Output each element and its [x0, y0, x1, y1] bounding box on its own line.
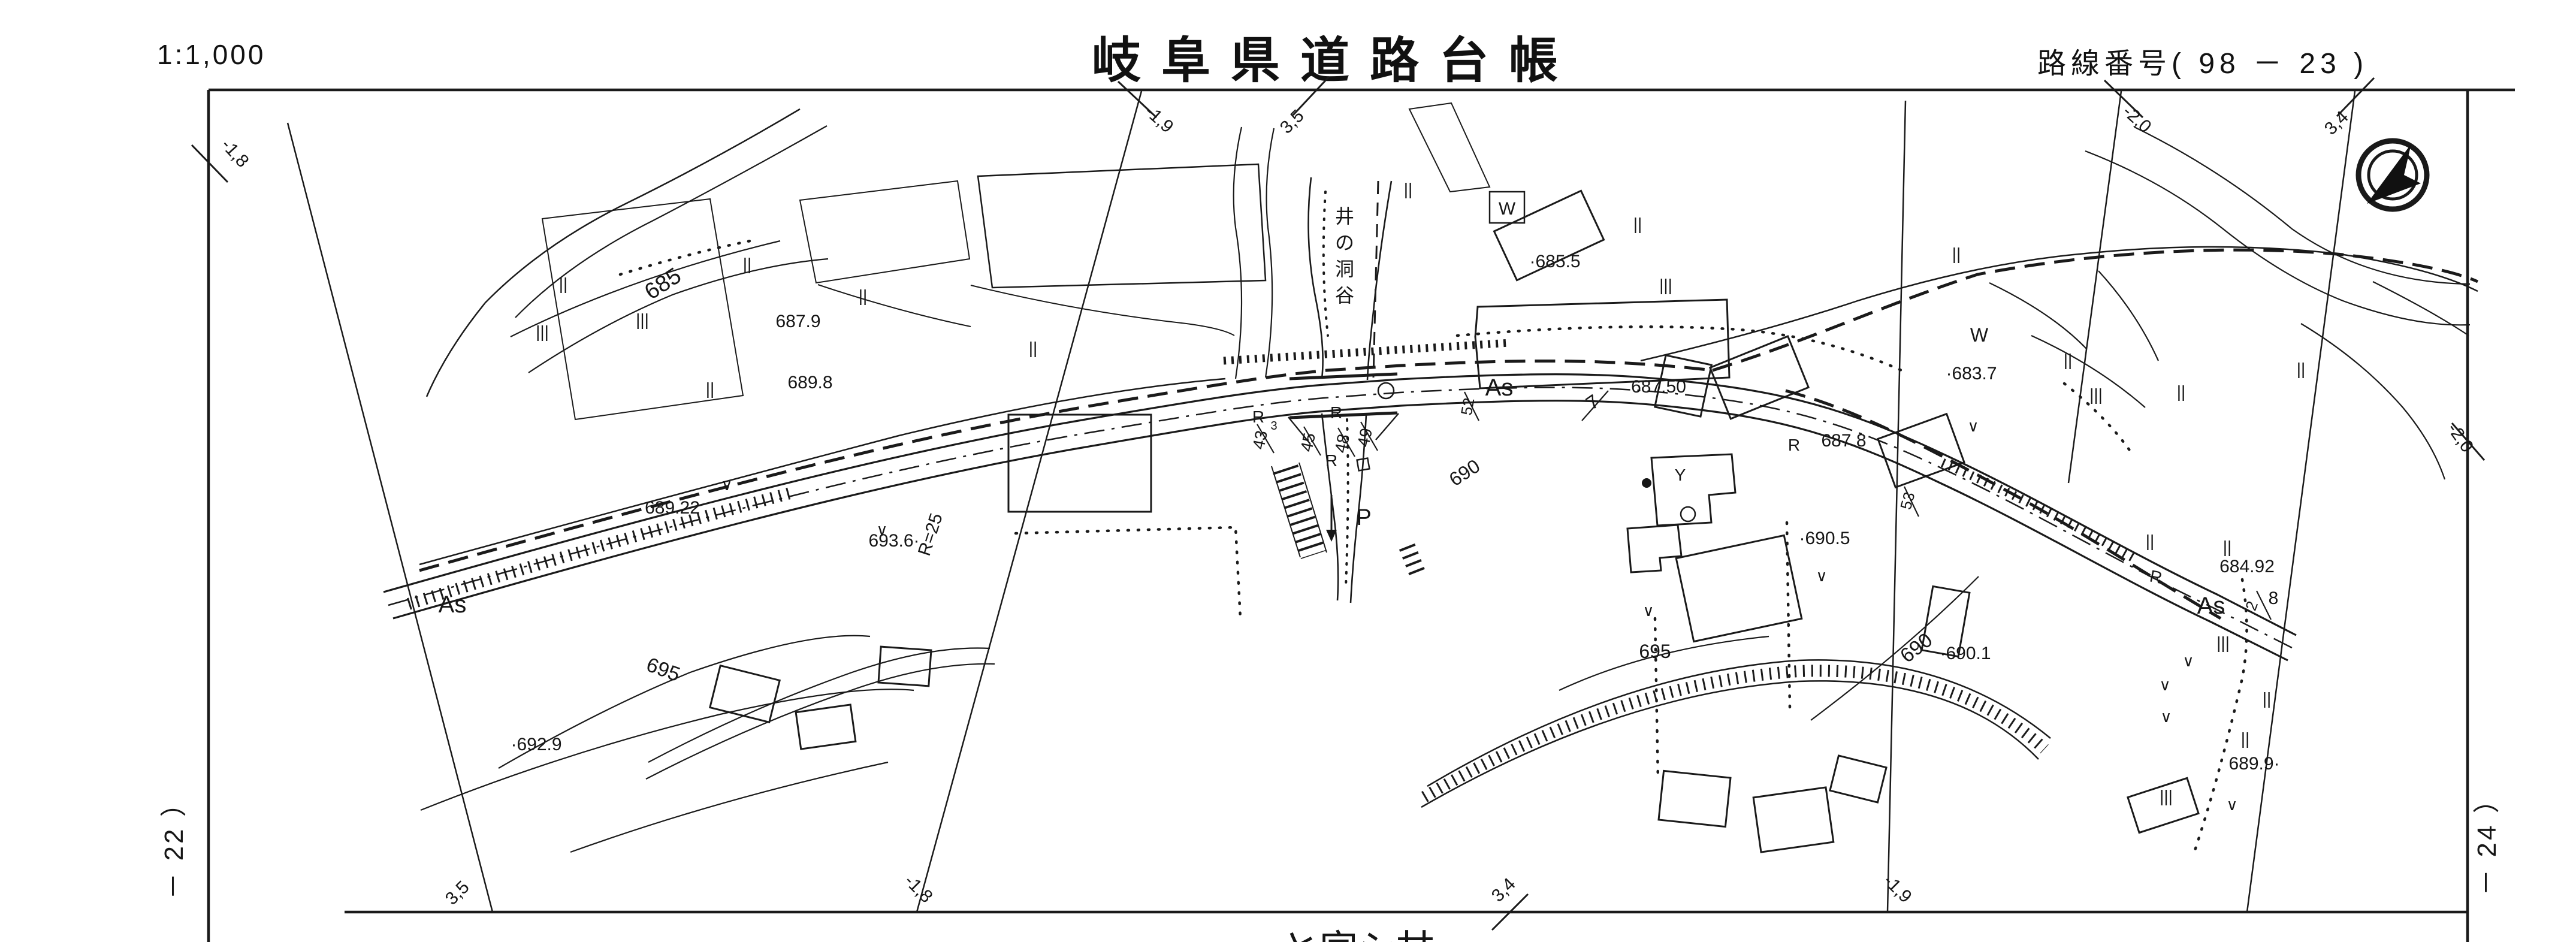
stream-name-char: の — [1335, 232, 1354, 253]
grid-tick: -2,0 — [2119, 101, 2155, 137]
benchmark-dot — [1642, 478, 1651, 488]
map-drawing: － 22 ） － 24 ） と宮シ甘 井の洞谷 -1,8-1,93,5-2,03… — [0, 0, 2576, 942]
grass-symbol: ∨ — [1816, 567, 1827, 585]
spot-elevation: 687.9 — [775, 312, 820, 331]
field-symbol: || — [2146, 532, 2155, 550]
grass-symbol: ∨ — [2226, 796, 2237, 814]
width-dimension: 49 — [1354, 427, 1376, 449]
field-symbol: || — [2223, 538, 2232, 556]
left-sheet-number: － 22 ） — [159, 788, 189, 899]
field-symbol: ||| — [2160, 787, 2173, 805]
contour-label: 695 — [1639, 641, 1671, 662]
field-symbol: || — [743, 255, 752, 273]
width-measure-ticks — [1257, 391, 2271, 620]
spot-elevation: ·690.5 — [1799, 529, 1850, 548]
spot-elevation: 687.8 — [1821, 431, 1866, 451]
spot-elevation: ·690.1 — [1940, 644, 1991, 663]
stairs-small — [1407, 547, 1418, 574]
grass-symbol: ∨ — [2160, 708, 2172, 726]
grid-tick: -1,9 — [1880, 871, 1916, 907]
road-letter: R — [1252, 407, 1264, 426]
right-sheet-number: － 24 ） — [2472, 784, 2502, 895]
field-symbol: ||| — [2089, 385, 2103, 404]
building — [1659, 771, 1731, 826]
walls-and-stairs — [409, 343, 2134, 604]
field-symbol: || — [559, 274, 568, 293]
building — [796, 705, 856, 749]
field-symbol: || — [706, 379, 715, 398]
field-letter: W — [1970, 324, 1989, 346]
field-symbol: || — [1404, 180, 1413, 198]
field-symbol: || — [2297, 360, 2306, 378]
stream-name-char: 井 — [1335, 206, 1354, 227]
spot-elevation: ·692.9 — [511, 735, 561, 754]
road-letter: R — [1325, 451, 1337, 470]
stairs — [1285, 469, 1313, 555]
road-letter: P — [1356, 505, 1371, 530]
grass-symbol: ∨ — [2159, 676, 2170, 694]
building — [878, 647, 931, 686]
grid-tick: 3,4 — [1488, 874, 1520, 906]
field-symbol: || — [859, 286, 868, 305]
grass-symbol: ∨ — [721, 476, 732, 494]
width-dimension: 48 — [1331, 433, 1353, 455]
contour-label: 690 — [1445, 455, 1484, 490]
north-compass-icon — [2358, 141, 2427, 209]
building — [1651, 454, 1735, 526]
grass-symbol: ∨ — [1642, 602, 1654, 620]
field-symbol: || — [2263, 689, 2272, 708]
spot-elevation: 689.8 — [787, 373, 832, 393]
pavement-label: As — [1485, 375, 1514, 401]
grass-symbol: ∨ — [876, 521, 887, 539]
admin-boundary-dash — [419, 361, 1713, 570]
width-dimension: 43 — [1249, 429, 1271, 451]
spot-elevation: ·683.7 — [1946, 364, 1997, 384]
field-symbol: || — [1633, 215, 1642, 233]
bottom-margin-note: と宮シ甘 — [1281, 928, 1435, 942]
building — [1627, 525, 1681, 572]
building — [1753, 787, 1834, 852]
pavement-label: As — [2197, 593, 2225, 619]
manhole-circle — [1681, 507, 1695, 521]
spot-elevation: 689.9· — [2228, 754, 2279, 774]
contour-label: 695 — [644, 653, 683, 686]
main-road — [383, 250, 2478, 660]
road-ledger-sheet: 1:1,000 岐阜県道路台帳 路線番号( 98 － 23 ) — [0, 0, 2576, 942]
width-dimension: 52 — [1457, 397, 1478, 417]
width-dimension: 45 — [1297, 431, 1319, 454]
field-symbol: ||| — [636, 310, 649, 329]
building — [1878, 414, 1964, 488]
building — [1830, 756, 1886, 802]
field-symbol: || — [1952, 244, 1961, 263]
well-symbol-letter: W — [1499, 199, 1516, 219]
field-symbol: || — [2177, 382, 2186, 401]
stream-name: 井の洞谷 — [1335, 206, 1354, 306]
grid-tick: -2,0 — [2443, 419, 2477, 456]
field-symbol: || — [2064, 351, 2073, 369]
width-dimension: 8 — [2269, 588, 2279, 608]
section-boundary-lines — [192, 77, 2484, 930]
manhole-circle — [1378, 383, 1394, 398]
grass-symbol: ∨ — [2182, 652, 2194, 670]
spot-elevation: 687.50 — [1631, 377, 1686, 397]
road-letter: R — [1788, 436, 1800, 454]
grid-tick: -1,8 — [901, 871, 937, 907]
grid-tick: -1,8 — [217, 135, 252, 171]
spot-elevation: 689.22 — [645, 498, 700, 518]
grid-tick: 3,4 — [2321, 107, 2352, 139]
spot-elevation: ·685.5 — [1529, 252, 1580, 271]
field-symbol: || — [1029, 339, 1038, 357]
embankment-hatch — [1424, 671, 2045, 797]
contour-label: 690 — [1896, 629, 1937, 668]
stream-name-char: 谷 — [1335, 285, 1354, 306]
grid-tick: 3,5 — [1276, 106, 1308, 138]
field-symbol: ||| — [2216, 633, 2230, 652]
road-letter: R — [1330, 403, 1342, 422]
stream-name-char: 洞 — [1335, 258, 1354, 280]
road-letter: 3 — [1270, 419, 1277, 433]
width-dimension: 2 — [2242, 599, 2261, 613]
grass-symbol: ∨ — [1967, 417, 1979, 435]
grid-tick: 3,5 — [442, 877, 473, 909]
field-symbol: || — [2241, 729, 2250, 748]
field-symbol: ||| — [1659, 276, 1672, 294]
field-symbol: ||| — [536, 322, 549, 341]
building — [1676, 535, 1802, 641]
spot-elevation: 684.92 — [2219, 557, 2275, 576]
building-letter: Y — [1675, 466, 1686, 484]
flow-arrow-head — [1326, 530, 1337, 542]
pavement-label: As — [439, 591, 467, 618]
